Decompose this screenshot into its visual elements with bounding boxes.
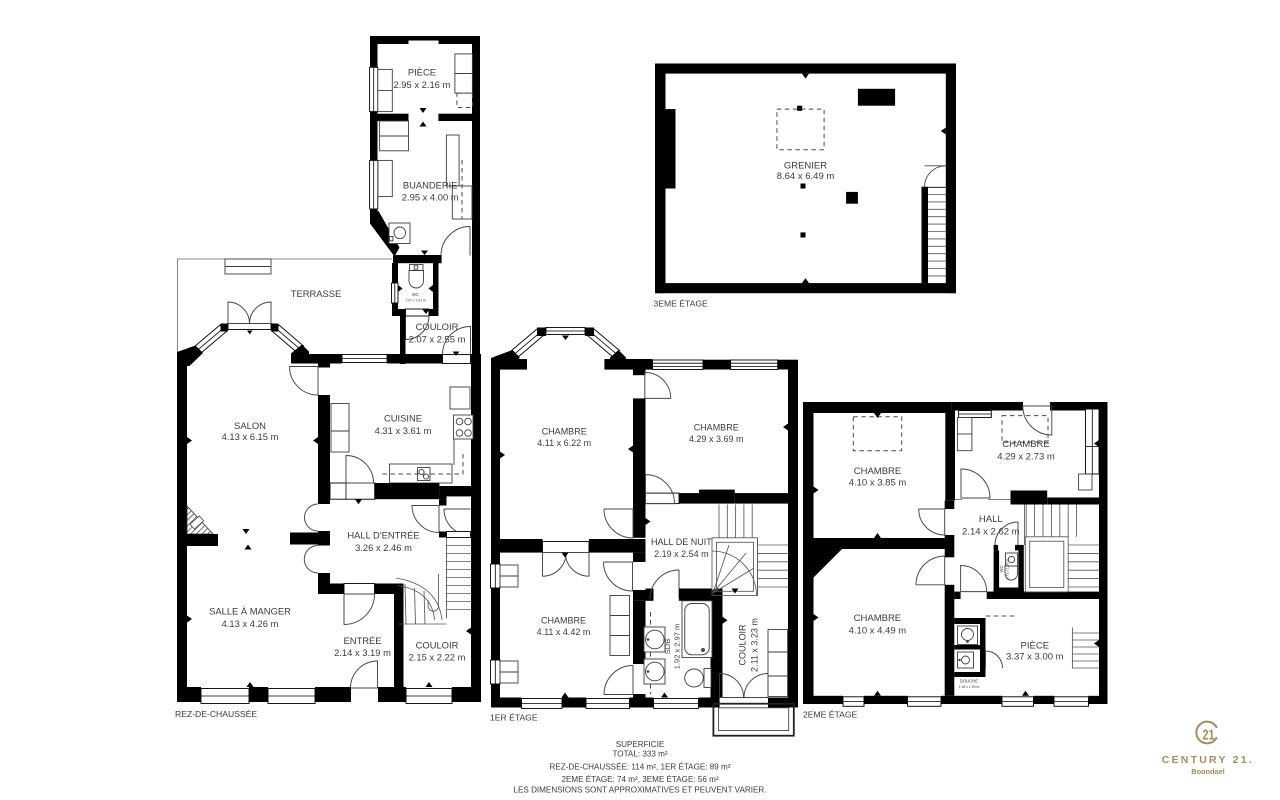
svg-text:CHAMBRE: CHAMBRE (541, 616, 586, 626)
svg-text:2EME ÉTAGE: 2EME ÉTAGE (803, 710, 858, 720)
svg-text:BUANDERIE: BUANDERIE (403, 179, 458, 190)
svg-text:CHAMBRE: CHAMBRE (1002, 439, 1050, 450)
svg-text:4.11 x 6.22 m: 4.11 x 6.22 m (537, 438, 591, 448)
svg-text:2.19 x 2.54 m: 2.19 x 2.54 m (654, 549, 709, 559)
svg-text:1.18 x 1.53 m: 1.18 x 1.53 m (959, 685, 980, 689)
svg-text:PIÈCE: PIÈCE (1021, 641, 1050, 652)
svg-text:1.92 x 2.97 m: 1.92 x 2.97 m (673, 624, 682, 669)
svg-text:CENTURY 21.: CENTURY 21. (1162, 754, 1252, 766)
svg-text:CHAMBRE: CHAMBRE (694, 423, 739, 433)
svg-text:HALL: HALL (979, 514, 1003, 525)
svg-text:2.14 x 3.19 m: 2.14 x 3.19 m (334, 647, 391, 658)
svg-text:SDB: SDB (663, 639, 672, 654)
svg-text:CHAMBRE: CHAMBRE (854, 466, 902, 477)
svg-text:CUISINE: CUISINE (384, 413, 422, 424)
svg-text:DOUCHE: DOUCHE (960, 679, 978, 684)
svg-text:4.10 x 3.85 m: 4.10 x 3.85 m (849, 477, 907, 488)
svg-text:1ER ÉTAGE: 1ER ÉTAGE (490, 713, 538, 723)
svg-text:4.29 x 2.73 m: 4.29 x 2.73 m (997, 451, 1055, 462)
svg-text:CHAMBRE: CHAMBRE (854, 613, 902, 624)
svg-text:2EME ÉTAGE: 74 m², 3EME ÉTAGE:: 2EME ÉTAGE: 74 m², 3EME ÉTAGE: 56 m² (561, 775, 718, 784)
svg-text:8.64 x 6.49 m: 8.64 x 6.49 m (777, 171, 835, 182)
svg-text:TOTAL: 333 m²: TOTAL: 333 m² (612, 750, 667, 759)
svg-text:HALL DE NUIT: HALL DE NUIT (651, 537, 712, 547)
svg-text:2.95 x 2.16 m: 2.95 x 2.16 m (393, 79, 450, 90)
svg-text:COULOIR: COULOIR (416, 321, 459, 332)
svg-text:4.13 x 6.15 m: 4.13 x 6.15 m (222, 431, 279, 442)
svg-text:SUPERFICIE: SUPERFICIE (616, 740, 665, 749)
svg-text:HALL D'ENTRÉE: HALL D'ENTRÉE (347, 530, 419, 541)
svg-text:4.11 x 4.42 m: 4.11 x 4.42 m (537, 627, 591, 637)
svg-text:2.07 x 2.55 m: 2.07 x 2.55 m (409, 333, 466, 344)
svg-text:COULOIR: COULOIR (738, 624, 748, 666)
svg-text:SALON: SALON (234, 420, 266, 431)
svg-text:SALLE À MANGER: SALLE À MANGER (209, 606, 291, 617)
svg-text:0.73 x 1.35 m: 0.73 x 1.35 m (1006, 559, 1010, 580)
svg-text:GRENIER: GRENIER (784, 160, 827, 171)
svg-text:PIÈCE: PIÈCE (408, 67, 436, 78)
svg-text:LES DIMENSIONS SONT APPROXIMAT: LES DIMENSIONS SONT APPROXIMATIVES ET PE… (514, 786, 767, 795)
svg-text:4.31 x 3.61 m: 4.31 x 3.61 m (375, 425, 432, 436)
svg-text:3.37 x 3.00 m: 3.37 x 3.00 m (1006, 652, 1064, 663)
svg-text:COULOIR: COULOIR (416, 640, 459, 651)
svg-text:3.26 x 2.46 m: 3.26 x 2.46 m (355, 542, 412, 553)
svg-text:1.07 x 1.41 m: 1.07 x 1.41 m (405, 299, 426, 303)
svg-text:CHAMBRE: CHAMBRE (542, 427, 587, 437)
svg-text:2.14 x 2.62 m: 2.14 x 2.62 m (962, 527, 1020, 538)
svg-text:2.15 x 2.22 m: 2.15 x 2.22 m (409, 652, 466, 663)
svg-text:REZ-DE-CHAUSSÉE: 114 m², 1ER É: REZ-DE-CHAUSSÉE: 114 m², 1ER ÉTAGE: 89 m… (550, 762, 731, 771)
svg-text:Boondael: Boondael (1191, 767, 1225, 776)
svg-text:2.11 x 3.23 m: 2.11 x 3.23 m (750, 618, 760, 672)
svg-text:4.29 x 3.69 m: 4.29 x 3.69 m (689, 434, 744, 444)
svg-text:WC: WC (999, 566, 1004, 573)
svg-text:REZ-DE-CHAUSSÉE: REZ-DE-CHAUSSÉE (175, 709, 257, 719)
svg-text:WC: WC (412, 292, 419, 297)
svg-text:TERRASSE: TERRASSE (291, 288, 342, 299)
svg-text:ENTRÉE: ENTRÉE (343, 635, 381, 646)
svg-text:2.95 x 4.00 m: 2.95 x 4.00 m (402, 192, 459, 203)
svg-text:4.10 x 4.49 m: 4.10 x 4.49 m (849, 626, 907, 637)
svg-text:21: 21 (1203, 727, 1215, 744)
svg-text:4.13 x 4.26 m: 4.13 x 4.26 m (222, 618, 279, 629)
svg-text:3EME ÉTAGE: 3EME ÉTAGE (654, 299, 709, 309)
